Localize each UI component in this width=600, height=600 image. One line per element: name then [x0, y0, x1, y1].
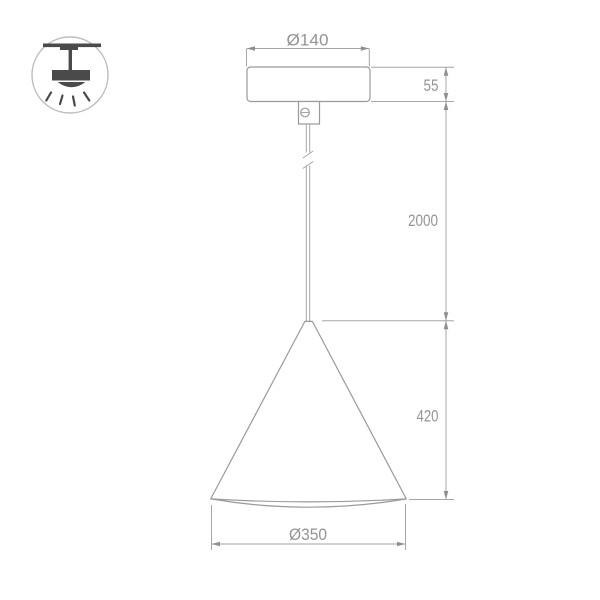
cone-shade-outline: [211, 321, 407, 507]
icon-mount-plate: [60, 47, 78, 50]
cone-shade: [211, 321, 407, 507]
dim-shade-diameter-label: Ø350: [289, 525, 327, 544]
product-dimension-drawing: Ø140 55 2000 420 Ø350: [0, 0, 600, 600]
dim-suspension-length-label: 2000: [408, 211, 438, 230]
cord-break-mark-upper: [303, 151, 313, 158]
canopy-outline: [247, 67, 370, 102]
icon-shade: [52, 70, 90, 81]
dim-shade-height-label: 420: [417, 407, 439, 426]
icon-ceiling-bar: [43, 44, 101, 48]
dim-canopy-height-label: 55: [424, 76, 439, 95]
drawing-canvas: Ø140 55 2000 420 Ø350: [0, 0, 600, 600]
lamp-drawing: [211, 67, 407, 507]
icon-stem: [69, 50, 72, 71]
dim-canopy-diameter-label: Ø140: [287, 31, 329, 50]
cord-break-mark-lower: [303, 162, 313, 169]
ceiling-pendant-light-icon: [32, 37, 108, 113]
suspension-cord: [303, 124, 313, 321]
